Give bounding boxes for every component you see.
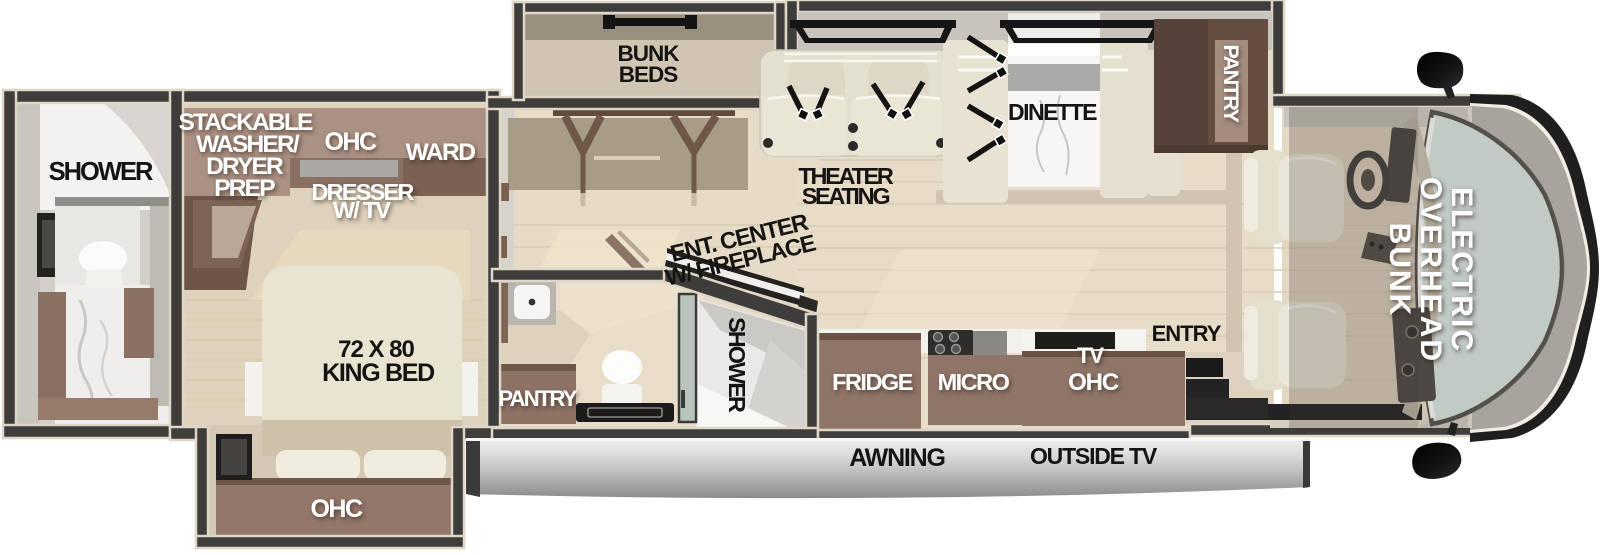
svg-text:PANTRY: PANTRY	[1219, 45, 1243, 123]
svg-text:BEDS: BEDS	[619, 62, 679, 87]
svg-text:OUTSIDE TV: OUTSIDE TV	[1030, 443, 1158, 469]
svg-text:PANTRY: PANTRY	[498, 386, 577, 411]
svg-text:FRIDGE: FRIDGE	[832, 369, 913, 395]
svg-text:SHOWER: SHOWER	[724, 317, 750, 413]
svg-text:DINETTE: DINETTE	[1008, 99, 1097, 125]
svg-text:BUNK: BUNK	[1383, 223, 1416, 318]
svg-text:AWNING: AWNING	[849, 444, 945, 472]
svg-text:MICRO: MICRO	[938, 369, 1010, 395]
svg-text:KING BED: KING BED	[322, 359, 434, 387]
svg-text:OHC: OHC	[310, 495, 363, 523]
svg-text:SHOWER: SHOWER	[49, 158, 153, 186]
svg-text:ENTRY: ENTRY	[1152, 321, 1222, 346]
svg-text:OVERHEAD: OVERHEAD	[1414, 177, 1447, 363]
svg-text:TV: TV	[1077, 343, 1104, 368]
svg-text:WARD: WARD	[406, 139, 476, 166]
svg-text:ELECTRIC: ELECTRIC	[1445, 187, 1478, 353]
svg-text:PREP: PREP	[214, 175, 275, 202]
svg-text:OHC: OHC	[1068, 369, 1119, 396]
svg-text:SEATING: SEATING	[802, 183, 890, 209]
svg-text:OHC: OHC	[324, 128, 377, 156]
svg-text:W/ TV: W/ TV	[333, 197, 391, 223]
